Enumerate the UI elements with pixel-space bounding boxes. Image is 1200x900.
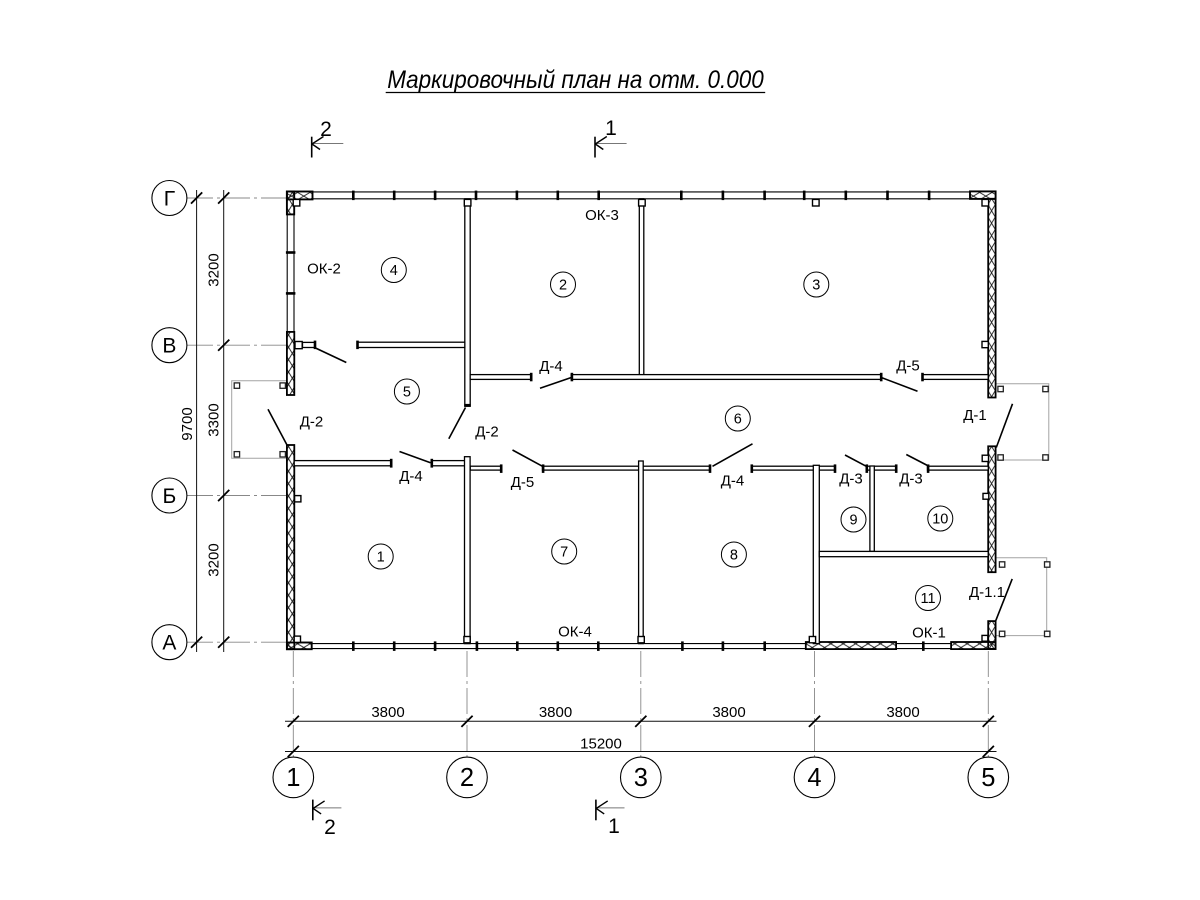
svg-text:2: 2 xyxy=(559,278,567,294)
svg-text:10: 10 xyxy=(932,512,948,528)
svg-text:3: 3 xyxy=(634,764,648,792)
svg-text:7: 7 xyxy=(560,545,568,561)
svg-text:3: 3 xyxy=(812,278,820,294)
svg-text:Д-3: Д-3 xyxy=(839,471,863,488)
svg-text:Д-4: Д-4 xyxy=(539,358,563,375)
svg-text:Д-5: Д-5 xyxy=(896,358,920,375)
svg-text:9: 9 xyxy=(849,513,857,529)
svg-text:15200: 15200 xyxy=(580,736,622,753)
svg-text:Д-4: Д-4 xyxy=(399,468,423,485)
svg-text:4: 4 xyxy=(807,764,821,792)
svg-text:В: В xyxy=(162,335,176,358)
svg-text:3800: 3800 xyxy=(886,704,919,721)
svg-text:11: 11 xyxy=(920,591,935,607)
svg-text:ОК-2: ОК-2 xyxy=(307,261,341,278)
svg-text:ОК-4: ОК-4 xyxy=(558,624,592,641)
svg-text:1: 1 xyxy=(608,815,620,838)
svg-text:3300: 3300 xyxy=(206,403,223,436)
svg-text:1: 1 xyxy=(605,117,617,140)
svg-text:Д-5: Д-5 xyxy=(511,474,535,491)
svg-text:Д-2: Д-2 xyxy=(300,414,324,431)
svg-text:Д-1: Д-1 xyxy=(963,407,987,424)
svg-text:3200: 3200 xyxy=(206,253,223,286)
svg-text:Д-4: Д-4 xyxy=(721,473,745,490)
svg-text:3800: 3800 xyxy=(712,704,745,721)
svg-text:ОК-3: ОК-3 xyxy=(585,207,619,224)
svg-text:9700: 9700 xyxy=(179,407,196,440)
svg-text:А: А xyxy=(162,632,176,655)
svg-text:5: 5 xyxy=(403,385,411,401)
svg-text:1: 1 xyxy=(286,764,300,792)
svg-text:Д-2: Д-2 xyxy=(475,424,499,441)
svg-text:6: 6 xyxy=(734,412,742,428)
svg-text:2: 2 xyxy=(460,764,474,792)
svg-text:5: 5 xyxy=(981,764,995,792)
svg-text:Маркировочный план на отм. 0.0: Маркировочный план на отм. 0.000 xyxy=(387,66,764,94)
svg-text:8: 8 xyxy=(730,548,738,564)
svg-text:1: 1 xyxy=(377,550,385,566)
svg-text:4: 4 xyxy=(390,263,398,279)
svg-text:Д-1.1: Д-1.1 xyxy=(969,584,1005,601)
svg-text:ОК-1: ОК-1 xyxy=(912,625,946,642)
svg-text:3800: 3800 xyxy=(371,704,404,721)
svg-text:2: 2 xyxy=(324,816,336,839)
svg-text:Г: Г xyxy=(164,188,175,211)
svg-text:2: 2 xyxy=(320,118,332,141)
svg-text:Б: Б xyxy=(163,485,177,508)
svg-text:3200: 3200 xyxy=(206,543,223,576)
svg-text:Д-3: Д-3 xyxy=(899,471,923,488)
svg-text:3800: 3800 xyxy=(539,704,572,721)
